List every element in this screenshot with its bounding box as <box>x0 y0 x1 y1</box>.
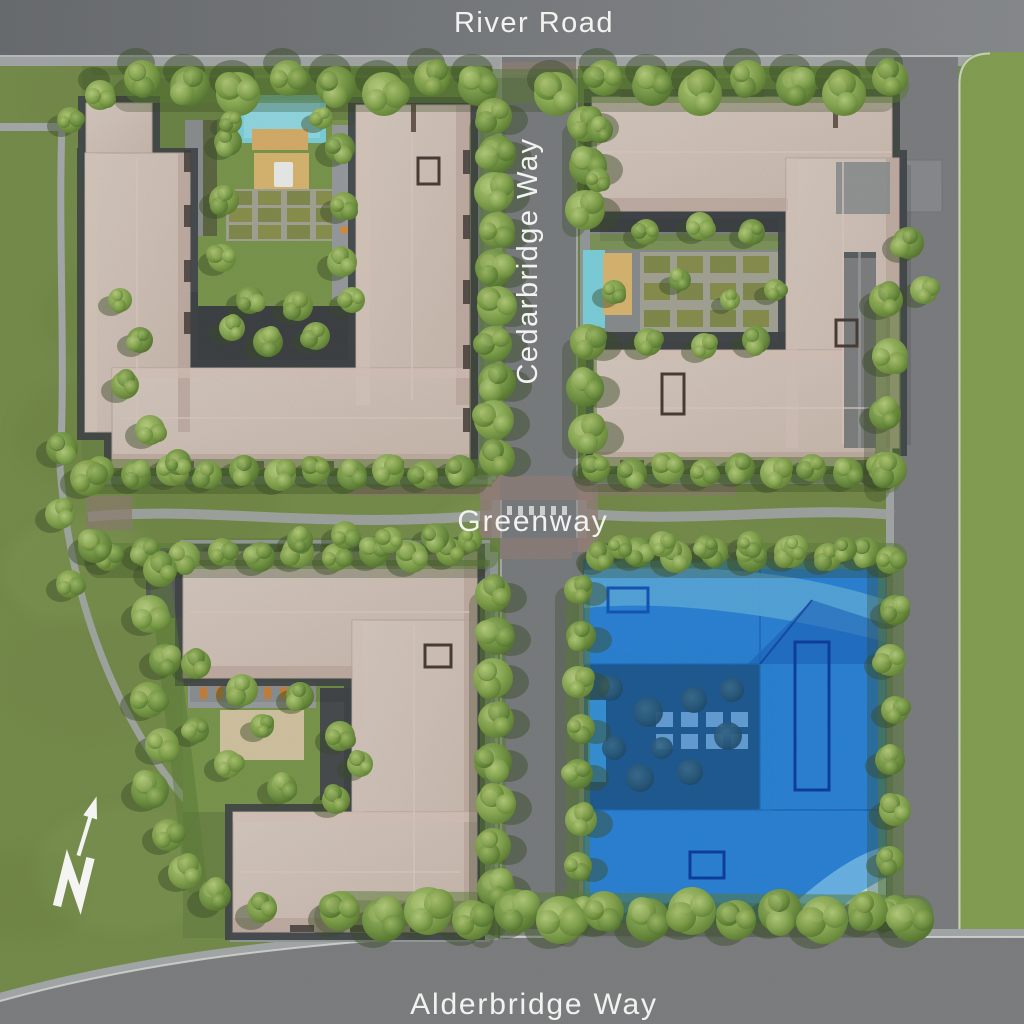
svg-text:River Road: River Road <box>454 7 614 39</box>
svg-text:Cedarbridge Way: Cedarbridge Way <box>512 137 544 384</box>
svg-text:Greenway: Greenway <box>457 505 608 538</box>
svg-text:Alderbridge Way: Alderbridge Way <box>410 988 658 1021</box>
